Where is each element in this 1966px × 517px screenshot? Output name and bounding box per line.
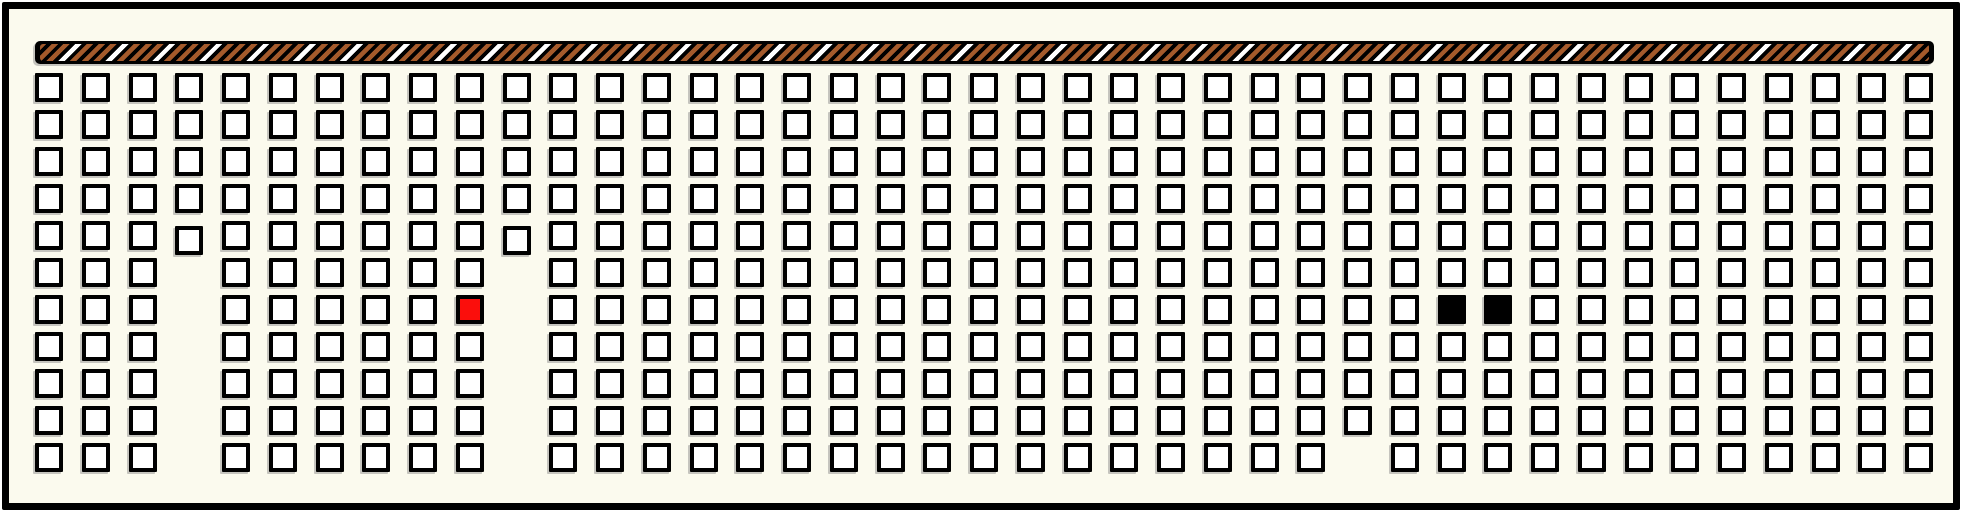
seat[interactable] [1391,443,1419,472]
seat[interactable] [1484,110,1512,139]
seat[interactable] [596,406,624,435]
seat[interactable] [1251,221,1279,250]
seat[interactable] [1017,443,1045,472]
seat[interactable] [549,332,577,361]
seat[interactable] [783,221,811,250]
seat[interactable] [690,184,718,213]
seat[interactable] [409,369,437,398]
seat[interactable] [1671,332,1699,361]
seat[interactable] [1251,443,1279,472]
seat[interactable] [1671,443,1699,472]
seat[interactable] [1858,295,1886,324]
seat[interactable] [35,443,63,472]
seat[interactable] [736,443,764,472]
seat[interactable] [1251,147,1279,176]
seat[interactable] [35,73,63,102]
seat[interactable] [1531,184,1559,213]
seat[interactable] [409,258,437,287]
seat[interactable] [222,110,250,139]
seat[interactable] [1718,406,1746,435]
seat[interactable] [783,73,811,102]
seat[interactable] [1344,332,1372,361]
seat[interactable] [1625,147,1653,176]
seat[interactable] [690,295,718,324]
seat[interactable] [1858,258,1886,287]
seat[interactable] [1671,369,1699,398]
seat[interactable] [1017,258,1045,287]
seat[interactable] [1625,110,1653,139]
seat[interactable] [222,332,250,361]
seat[interactable] [35,295,63,324]
seat[interactable] [269,406,297,435]
seat[interactable] [1905,295,1933,324]
seat[interactable] [1812,73,1840,102]
seat[interactable] [1438,406,1466,435]
seat[interactable] [1297,332,1325,361]
seat[interactable] [1251,73,1279,102]
seat[interactable] [1297,73,1325,102]
seat[interactable] [1064,295,1092,324]
seat[interactable] [316,258,344,287]
seat[interactable] [643,221,671,250]
seat[interactable] [1625,258,1653,287]
seat[interactable] [923,258,951,287]
seat[interactable] [1858,221,1886,250]
seat[interactable] [1204,110,1232,139]
seat[interactable] [1297,443,1325,472]
seat[interactable] [1391,295,1419,324]
seat[interactable] [1718,295,1746,324]
seat[interactable] [1671,295,1699,324]
seat[interactable] [1905,369,1933,398]
seat[interactable] [1531,295,1559,324]
seat[interactable] [1297,184,1325,213]
seat[interactable] [596,295,624,324]
seat[interactable] [1251,258,1279,287]
seat[interactable] [1110,369,1138,398]
seat[interactable] [596,443,624,472]
seat[interactable] [1578,406,1606,435]
seat[interactable] [82,369,110,398]
seat[interactable] [1531,73,1559,102]
seat[interactable] [129,332,157,361]
seat[interactable] [409,406,437,435]
seat[interactable] [690,258,718,287]
seat[interactable] [1671,406,1699,435]
seat[interactable] [1204,295,1232,324]
seat[interactable] [316,406,344,435]
seat[interactable] [35,221,63,250]
seat[interactable] [643,258,671,287]
seat[interactable] [1625,443,1653,472]
seat[interactable] [1438,258,1466,287]
seat[interactable] [1064,258,1092,287]
seat[interactable] [1344,147,1372,176]
seat[interactable] [316,332,344,361]
seat[interactable] [970,332,998,361]
seat[interactable] [1157,184,1185,213]
seat[interactable] [1204,147,1232,176]
seat[interactable] [1671,73,1699,102]
seat[interactable] [970,369,998,398]
seat[interactable] [1578,258,1606,287]
seat[interactable] [1344,295,1372,324]
seat[interactable] [503,147,531,176]
seat[interactable] [1578,443,1606,472]
seat[interactable] [175,184,203,213]
seat[interactable] [830,443,858,472]
seat[interactable] [1110,73,1138,102]
seat[interactable] [736,332,764,361]
seat[interactable] [970,147,998,176]
seat[interactable] [736,221,764,250]
seat[interactable] [1718,332,1746,361]
seat[interactable] [877,73,905,102]
seat[interactable] [1391,221,1419,250]
seat[interactable] [1344,73,1372,102]
seat[interactable] [362,73,390,102]
seat[interactable] [1391,369,1419,398]
seat[interactable] [736,184,764,213]
seat[interactable] [129,147,157,176]
seat[interactable] [456,221,484,250]
seat[interactable] [1625,221,1653,250]
seat[interactable] [222,73,250,102]
seat[interactable] [1812,110,1840,139]
seat[interactable] [1064,369,1092,398]
seat[interactable] [596,110,624,139]
seat[interactable] [877,295,905,324]
seat[interactable] [1905,332,1933,361]
seat[interactable] [82,110,110,139]
seat[interactable] [643,184,671,213]
seat[interactable] [222,258,250,287]
seat[interactable] [362,221,390,250]
seat[interactable] [1064,110,1092,139]
seat[interactable] [503,110,531,139]
seat[interactable] [1438,184,1466,213]
seat[interactable] [1765,443,1793,472]
seat[interactable] [643,147,671,176]
seat[interactable] [643,73,671,102]
seat[interactable] [1578,73,1606,102]
seat[interactable] [82,443,110,472]
seat[interactable] [596,369,624,398]
seat[interactable] [1017,406,1045,435]
seat[interactable] [830,369,858,398]
seat[interactable] [269,443,297,472]
seat[interactable] [1858,332,1886,361]
seat[interactable] [269,73,297,102]
seat[interactable] [1297,147,1325,176]
seat[interactable] [1204,443,1232,472]
seat[interactable] [1718,110,1746,139]
seat[interactable] [222,406,250,435]
seat[interactable] [830,73,858,102]
seat[interactable] [362,184,390,213]
seat[interactable] [503,73,531,102]
seat[interactable] [549,295,577,324]
seat[interactable] [1858,147,1886,176]
seat[interactable] [923,406,951,435]
seat[interactable] [1578,147,1606,176]
seat[interactable] [1157,221,1185,250]
seat[interactable] [82,147,110,176]
seat[interactable] [1110,258,1138,287]
seat[interactable] [783,406,811,435]
seat[interactable] [830,110,858,139]
seat[interactable] [877,184,905,213]
seat[interactable] [1064,443,1092,472]
seat[interactable] [1531,443,1559,472]
seat[interactable] [1017,110,1045,139]
seat[interactable] [1438,110,1466,139]
seat[interactable] [596,221,624,250]
seat[interactable] [456,443,484,472]
seat[interactable] [1625,369,1653,398]
seat[interactable] [1578,369,1606,398]
seat[interactable] [82,295,110,324]
seat[interactable] [1438,332,1466,361]
seat[interactable] [316,295,344,324]
seat[interactable] [1110,443,1138,472]
seat[interactable] [1064,184,1092,213]
seat[interactable] [1064,221,1092,250]
seat[interactable] [222,369,250,398]
seat[interactable] [549,258,577,287]
seat[interactable] [877,369,905,398]
seat[interactable] [1391,110,1419,139]
seat[interactable] [923,184,951,213]
seat[interactable] [1484,332,1512,361]
seat[interactable] [129,110,157,139]
seat[interactable] [549,369,577,398]
seat[interactable] [1251,295,1279,324]
seat[interactable] [1578,332,1606,361]
seat[interactable] [549,184,577,213]
seat[interactable] [1671,258,1699,287]
seat[interactable] [1297,110,1325,139]
seat[interactable] [690,443,718,472]
seat[interactable] [316,443,344,472]
seat[interactable] [596,184,624,213]
seat[interactable] [1765,332,1793,361]
seat[interactable] [269,295,297,324]
seat[interactable] [970,295,998,324]
seat[interactable] [1017,147,1045,176]
seat[interactable] [269,147,297,176]
seat[interactable] [1625,73,1653,102]
seat[interactable] [923,110,951,139]
seat[interactable] [1858,110,1886,139]
seat[interactable] [409,443,437,472]
seat[interactable] [1812,295,1840,324]
seat[interactable] [1578,295,1606,324]
seat[interactable] [1297,406,1325,435]
seat[interactable] [736,258,764,287]
seat[interactable] [1157,258,1185,287]
seat[interactable] [549,221,577,250]
seat[interactable] [456,73,484,102]
seat[interactable] [1157,295,1185,324]
seat[interactable] [549,443,577,472]
seat[interactable] [1344,406,1372,435]
seat[interactable] [175,110,203,139]
seat[interactable] [923,295,951,324]
seat[interactable] [1578,110,1606,139]
seat[interactable] [877,147,905,176]
seat[interactable] [1765,295,1793,324]
seat[interactable] [1391,258,1419,287]
seat[interactable] [1484,73,1512,102]
seat[interactable] [269,369,297,398]
seat[interactable] [1671,110,1699,139]
seat[interactable] [783,110,811,139]
seat[interactable] [549,406,577,435]
seat[interactable] [362,406,390,435]
seat[interactable] [456,110,484,139]
seat[interactable] [35,406,63,435]
seat[interactable] [783,443,811,472]
seat[interactable] [269,110,297,139]
seat[interactable] [736,406,764,435]
seat[interactable] [362,258,390,287]
seat[interactable] [596,332,624,361]
seat[interactable] [1718,258,1746,287]
seat[interactable] [877,221,905,250]
seat[interactable] [1718,73,1746,102]
seat[interactable] [923,443,951,472]
seat[interactable] [1251,110,1279,139]
seat[interactable] [1531,110,1559,139]
seat[interactable] [1157,332,1185,361]
seat[interactable] [129,443,157,472]
seat[interactable] [1812,443,1840,472]
seat[interactable] [1438,369,1466,398]
seat[interactable] [596,147,624,176]
seat[interactable] [1858,369,1886,398]
seat[interactable] [269,184,297,213]
seat[interactable] [1204,221,1232,250]
seat[interactable] [1812,184,1840,213]
seat[interactable] [1625,295,1653,324]
seat[interactable] [409,110,437,139]
seat[interactable] [549,73,577,102]
seat[interactable] [1297,221,1325,250]
seat[interactable] [830,332,858,361]
seat[interactable] [783,184,811,213]
seat[interactable] [1765,369,1793,398]
seat[interactable] [1017,295,1045,324]
seat[interactable] [82,184,110,213]
seat[interactable] [1064,147,1092,176]
seat[interactable] [82,73,110,102]
seat[interactable] [736,369,764,398]
seat[interactable] [1905,147,1933,176]
seat[interactable] [970,443,998,472]
seat[interactable] [1438,221,1466,250]
seat[interactable] [1858,184,1886,213]
seat[interactable] [82,332,110,361]
seat[interactable] [362,295,390,324]
seat[interactable] [1905,184,1933,213]
seat[interactable] [970,221,998,250]
seat[interactable] [1344,110,1372,139]
seat[interactable] [1858,73,1886,102]
seat[interactable] [1391,73,1419,102]
seat[interactable] [456,332,484,361]
seat[interactable] [362,443,390,472]
seat[interactable] [456,406,484,435]
seat[interactable] [1157,147,1185,176]
seat[interactable] [1344,258,1372,287]
seat[interactable] [222,184,250,213]
seat[interactable] [1718,184,1746,213]
seat[interactable] [877,332,905,361]
seat[interactable] [1157,369,1185,398]
seat[interactable] [830,184,858,213]
seat[interactable] [1064,73,1092,102]
seat[interactable] [877,258,905,287]
seat[interactable] [736,110,764,139]
seat[interactable] [549,147,577,176]
seat[interactable] [269,221,297,250]
seat[interactable] [1438,73,1466,102]
seat[interactable] [316,147,344,176]
seat[interactable] [1157,406,1185,435]
seat[interactable] [1531,147,1559,176]
seat[interactable] [1718,147,1746,176]
seat[interactable] [643,295,671,324]
seat[interactable] [690,110,718,139]
seat[interactable] [1484,184,1512,213]
seat[interactable] [1531,369,1559,398]
seat[interactable] [1204,332,1232,361]
seat[interactable] [1204,184,1232,213]
seat[interactable] [1812,369,1840,398]
seat[interactable] [362,332,390,361]
seat[interactable] [1251,332,1279,361]
seat[interactable] [1157,443,1185,472]
seat[interactable] [269,258,297,287]
seat[interactable] [316,184,344,213]
seat[interactable] [1531,332,1559,361]
seat[interactable] [1531,258,1559,287]
seat[interactable] [1812,258,1840,287]
seat[interactable] [1625,332,1653,361]
seat[interactable] [690,406,718,435]
seat[interactable] [503,184,531,213]
seat[interactable] [316,369,344,398]
seat[interactable] [736,147,764,176]
seat-occupied[interactable] [1484,295,1512,324]
seat[interactable] [1858,443,1886,472]
seat[interactable] [830,295,858,324]
seat[interactable] [1297,369,1325,398]
seat[interactable] [1671,147,1699,176]
seat[interactable] [1110,147,1138,176]
seat[interactable] [129,184,157,213]
seat[interactable] [175,147,203,176]
seat[interactable] [923,73,951,102]
seat[interactable] [1064,406,1092,435]
seat[interactable] [830,221,858,250]
seat[interactable] [1765,184,1793,213]
seat[interactable] [1391,184,1419,213]
seat[interactable] [35,332,63,361]
seat[interactable] [1765,221,1793,250]
seat[interactable] [596,258,624,287]
